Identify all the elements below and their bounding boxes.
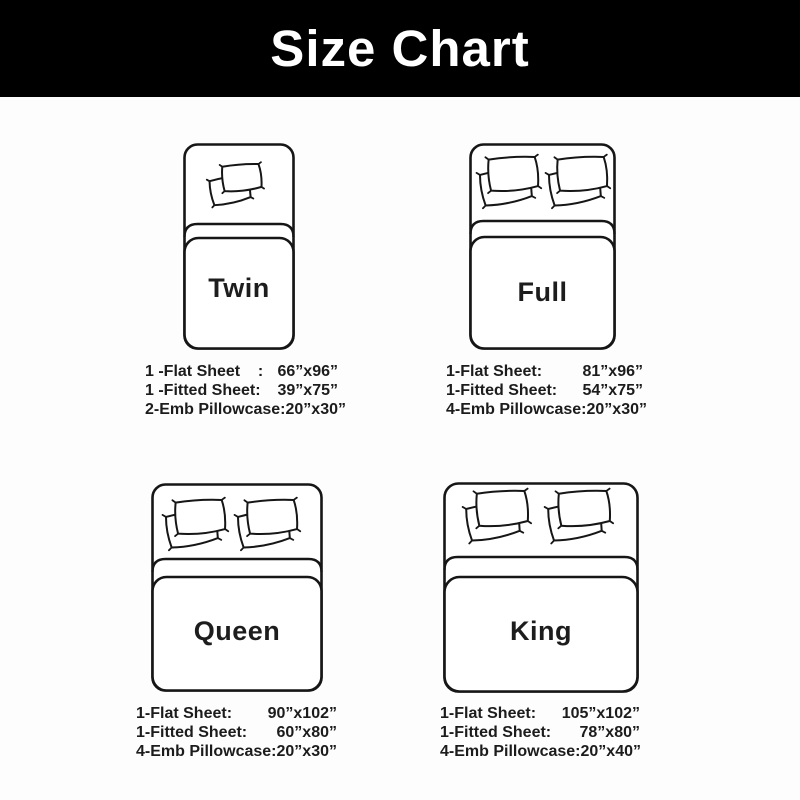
spec-label: 1-Fitted Sheet: [136, 723, 247, 742]
spec-label: 1-Fitted Sheet: [440, 723, 551, 742]
spec-label: 4-Emb Pillowcase: [446, 400, 587, 419]
spec-row: 1-Fitted Sheet: 54”x75” [446, 381, 643, 400]
spec-value: 105”x102” [562, 704, 640, 723]
full-specs: 1-Flat Sheet: 81”x96” 1-Fitted Sheet: 54… [446, 362, 643, 419]
spec-row: 1-Flat Sheet: 90”x102” [136, 704, 337, 723]
spec-row: 2-Emb Pillowcase: 20”x30” [145, 400, 338, 419]
spec-row: 1-Flat Sheet: 105”x102” [440, 704, 640, 723]
bed-size-label-king: King [443, 616, 639, 647]
spec-row: 1 -Flat Sheet : 66”x96” [145, 362, 338, 381]
size-chart-page: Size Chart Twin 1 -Flat Sheet : 66”x96” … [0, 0, 800, 800]
pillow-icon [473, 489, 531, 529]
queen-bed-diagram [151, 483, 323, 692]
spec-label: 2-Emb Pillowcase: [145, 400, 286, 419]
full-bed-diagram [469, 143, 616, 350]
spec-label: 1 -Fitted Sheet: [145, 381, 261, 400]
spec-row: 4-Emb Pillowcase: 20”x30” [446, 400, 643, 419]
spec-value: 39”x75” [278, 381, 339, 400]
page-title: Size Chart [270, 19, 529, 78]
spec-label: 1 -Flat Sheet : [145, 362, 263, 381]
twin-specs: 1 -Flat Sheet : 66”x96” 1 -Fitted Sheet:… [145, 362, 338, 419]
bed-size-label-queen: Queen [151, 616, 323, 647]
pillow-icon [485, 155, 541, 194]
spec-value: 81”x96” [583, 362, 644, 381]
spec-value: 90”x102” [268, 704, 337, 723]
king-specs: 1-Flat Sheet: 105”x102” 1-Fitted Sheet: … [440, 704, 640, 761]
spec-label: 1-Flat Sheet: [136, 704, 232, 723]
spec-label: 1-Flat Sheet: [440, 704, 536, 723]
spec-row: 4-Emb Pillowcase: 20”x30” [136, 742, 337, 761]
spec-label: 4-Emb Pillowcase: [136, 742, 277, 761]
spec-row: 4-Emb Pillowcase: 20”x40” [440, 742, 640, 761]
spec-label: 1-Fitted Sheet: [446, 381, 557, 400]
bed-size-label-full: Full [469, 277, 616, 308]
spec-value: 20”x30” [587, 400, 648, 419]
bed-size-label-twin: Twin [183, 273, 295, 304]
header-banner: Size Chart [0, 0, 800, 97]
spec-value: 20”x30” [277, 742, 338, 761]
spec-value: 78”x80” [580, 723, 641, 742]
twin-bed-diagram [183, 143, 295, 350]
pillow-icon [172, 498, 228, 537]
spec-row: 1-Fitted Sheet: 78”x80” [440, 723, 640, 742]
spec-value: 60”x80” [277, 723, 338, 742]
queen-specs: 1-Flat Sheet: 90”x102” 1-Fitted Sheet: 6… [136, 704, 337, 761]
pillow-icon [244, 498, 300, 537]
king-bed-diagram [443, 482, 639, 693]
pillow-icon [220, 162, 265, 193]
spec-value: 66”x96” [278, 362, 339, 381]
spec-row: 1 -Fitted Sheet: 39”x75” [145, 381, 338, 400]
spec-value: 20”x30” [286, 400, 347, 419]
pillow-icon [555, 489, 613, 529]
spec-label: 1-Flat Sheet: [446, 362, 542, 381]
spec-row: 1-Flat Sheet: 81”x96” [446, 362, 643, 381]
pillow-icon [554, 155, 610, 194]
spec-row: 1-Fitted Sheet: 60”x80” [136, 723, 337, 742]
spec-label: 4-Emb Pillowcase: [440, 742, 581, 761]
spec-value: 20”x40” [581, 742, 642, 761]
spec-value: 54”x75” [583, 381, 644, 400]
